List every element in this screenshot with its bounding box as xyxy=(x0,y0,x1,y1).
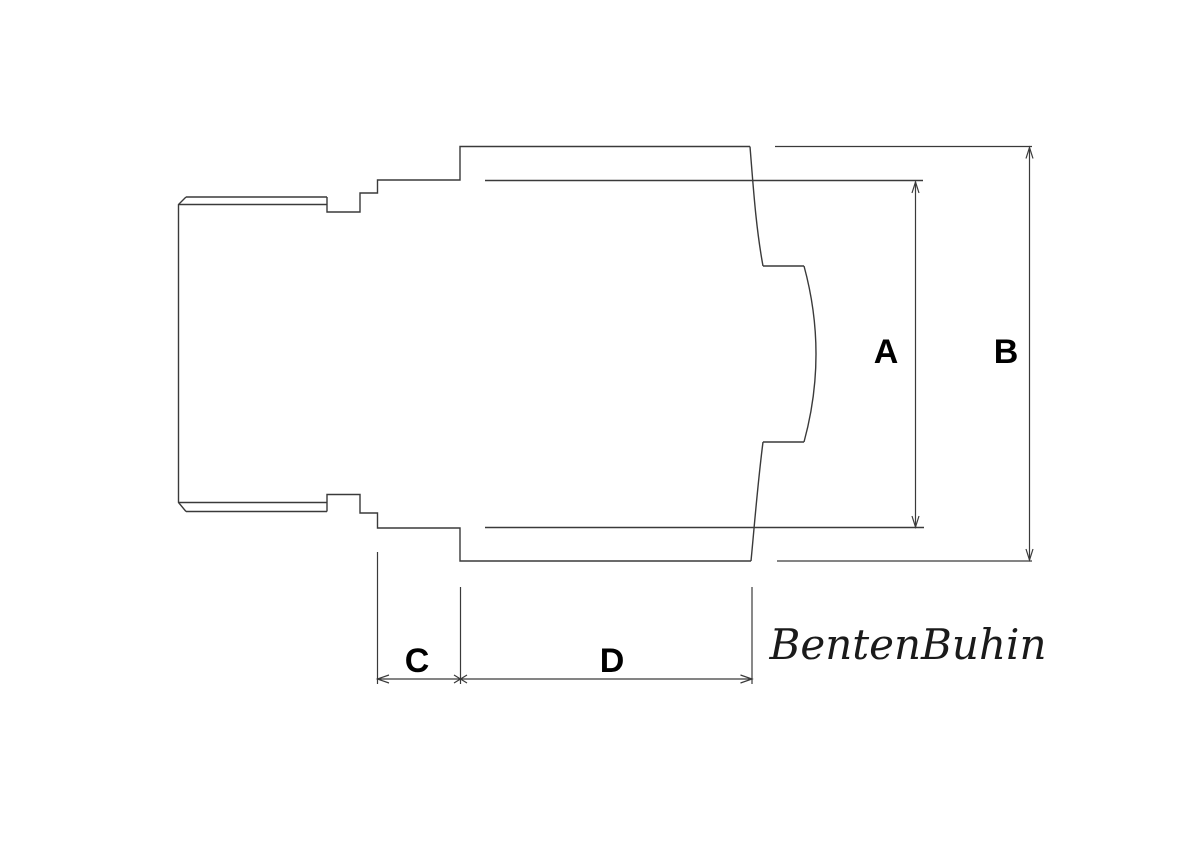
watermark-logo: BentenBuhin xyxy=(769,620,1047,669)
drawing-page: A B C D BentenBuhin xyxy=(0,0,1200,848)
part-left-edge xyxy=(179,197,187,512)
break-line-top xyxy=(750,147,763,267)
part-outline xyxy=(179,147,925,562)
break-line-bottom xyxy=(751,442,763,561)
technical-drawing-canvas: A B C D BentenBuhin xyxy=(0,0,1200,848)
dimension-cd xyxy=(378,552,753,684)
dimension-d-label: D xyxy=(600,642,625,680)
dimension-a-label: A xyxy=(874,333,899,371)
dimension-b-label: B xyxy=(994,333,1019,371)
socket-arc xyxy=(804,266,816,442)
dimension-a xyxy=(912,182,919,528)
dimension-c-label: C xyxy=(405,642,430,680)
part-top-profile xyxy=(327,147,750,213)
